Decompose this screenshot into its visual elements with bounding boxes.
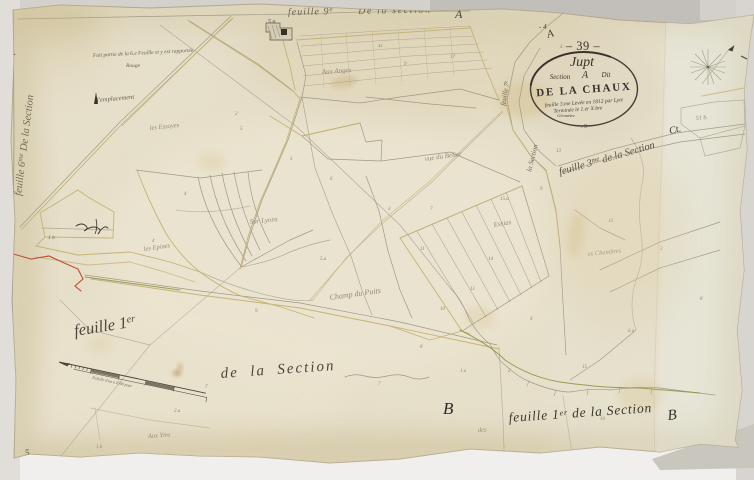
svg-text:1 b: 1 b <box>48 235 55 241</box>
svg-text:A: A <box>581 70 589 81</box>
svg-text:10: 10 <box>440 307 446 312</box>
svg-text:2.a: 2.a <box>174 409 181 414</box>
svg-text:14: 14 <box>488 257 494 262</box>
svg-text:6.a: 6.a <box>628 329 635 334</box>
svg-text:41: 41 <box>378 44 383 49</box>
svg-text:10: 10 <box>600 417 606 422</box>
svg-text:B: B <box>443 399 454 418</box>
svg-text:1.a: 1.a <box>460 369 467 374</box>
svg-text:51 b.: 51 b. <box>696 115 709 122</box>
svg-text:11: 11 <box>420 247 425 252</box>
svg-text:5.a: 5.a <box>320 257 327 262</box>
svg-text:Section: Section <box>550 73 571 81</box>
svg-text:des: des <box>478 426 488 434</box>
svg-text:12: 12 <box>470 287 476 292</box>
svg-text:Rouge: Rouge <box>125 63 141 69</box>
svg-text:– 39 –: – 39 – <box>565 39 601 53</box>
svg-text:17: 17 <box>450 55 456 60</box>
svg-text:15.a: 15.a <box>500 197 509 202</box>
svg-text:Dit: Dit <box>601 71 612 79</box>
svg-text:B: B <box>667 407 678 424</box>
svg-text:13: 13 <box>556 149 562 154</box>
svg-text:Jupt: Jupt <box>570 55 595 70</box>
svg-text:Géomètre: Géomètre <box>557 113 575 118</box>
svg-text:. 9: . 9 <box>581 124 587 130</box>
svg-text:15: 15 <box>582 365 588 370</box>
